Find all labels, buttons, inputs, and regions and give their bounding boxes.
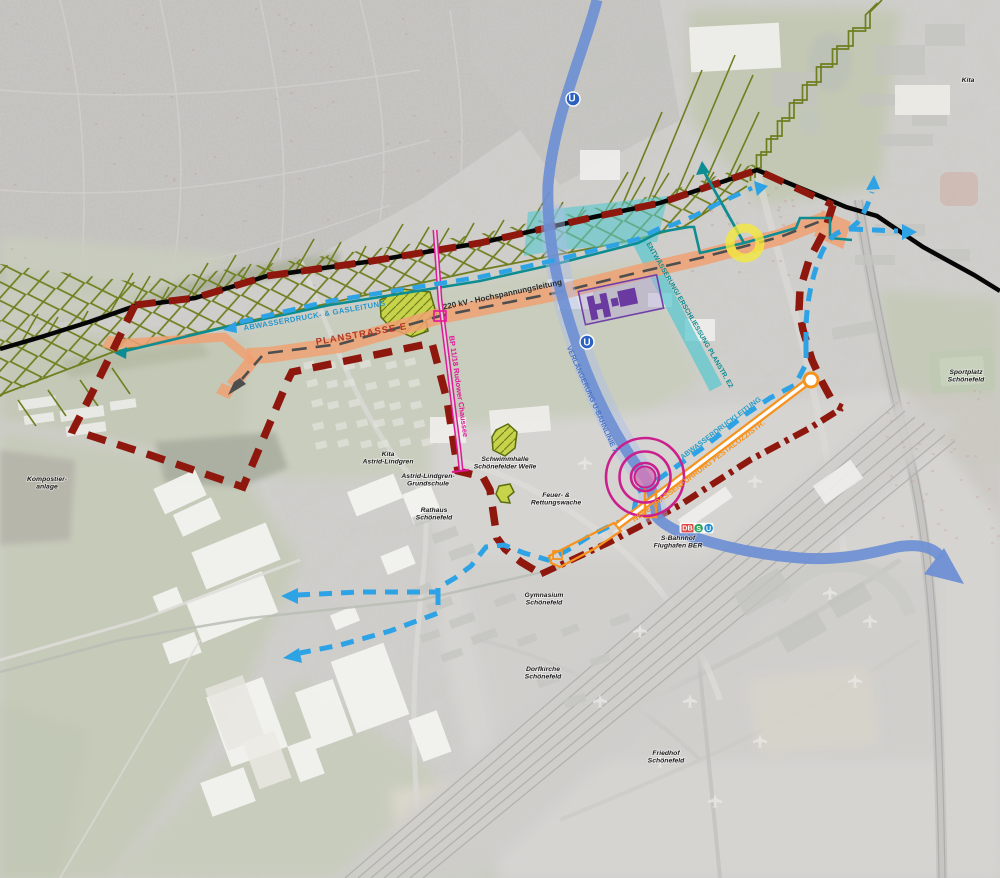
svg-text:Astrid-Lindgren-Grundschule: Astrid-Lindgren-Grundschule	[400, 473, 455, 488]
svg-text:GymnasiumSchönefeld: GymnasiumSchönefeld	[525, 592, 564, 607]
svg-text:SportplatzSchönefeld: SportplatzSchönefeld	[948, 369, 985, 384]
svg-text:SchwimmhalleSchönefelder Welle: SchwimmhalleSchönefelder Welle	[474, 456, 537, 471]
svg-text:S: S	[696, 524, 701, 533]
svg-text:FriedhofSchönefeld: FriedhofSchönefeld	[648, 750, 685, 765]
svg-text:U: U	[706, 524, 711, 533]
svg-text:DorfkircheSchönefeld: DorfkircheSchönefeld	[525, 666, 562, 681]
svg-text:U: U	[568, 94, 575, 105]
svg-text:S-BahnhofFlughafen BER: S-BahnhofFlughafen BER	[654, 535, 703, 550]
svg-text:DB: DB	[682, 524, 692, 533]
svg-text:Kita: Kita	[962, 77, 975, 84]
svg-text:U: U	[583, 338, 590, 349]
